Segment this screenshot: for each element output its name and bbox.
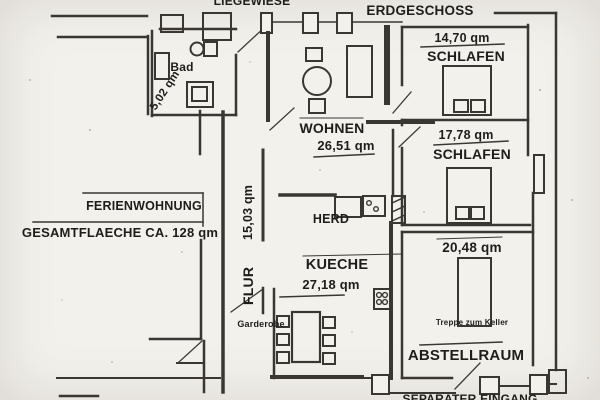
door-swing-icon	[455, 363, 480, 389]
chair-icon	[277, 334, 289, 345]
treppe-zum-keller-label: Treppe zum Keller	[436, 318, 508, 327]
dining-table-icon	[277, 312, 335, 364]
door-swing-icon	[179, 341, 202, 362]
schlafen1-area: 14,70 qm	[434, 31, 489, 45]
flur-area: 15,03 qm	[241, 185, 255, 240]
stairs-icon	[458, 258, 491, 326]
door-swing-icon	[393, 92, 411, 113]
kueche-area: 27,18 qm	[302, 277, 359, 292]
abstellraum-area: 20,48 qm	[442, 240, 501, 255]
area-underline	[437, 237, 502, 239]
area-underline	[280, 295, 344, 297]
toilet-icon	[191, 42, 218, 56]
kueche-room-label: KUECHE	[306, 257, 368, 273]
wohnen-area: 26,51 qm	[317, 138, 374, 153]
chair-icon	[277, 352, 289, 363]
chair-icon	[323, 317, 335, 328]
flur-room-label: FLUR	[240, 267, 256, 305]
bed-icon	[443, 66, 491, 115]
chair-icon	[323, 335, 335, 346]
shower-icon	[187, 82, 213, 107]
label-underline	[303, 254, 402, 256]
bed-icon	[447, 168, 491, 223]
chair-icon	[323, 353, 335, 364]
area-underline	[314, 154, 374, 157]
eingang-label: SEPARATER EINGANG	[403, 392, 538, 400]
herd-label: HERD	[313, 212, 349, 226]
round-table-icon	[303, 67, 331, 95]
schlafen2-area: 17,78 qm	[438, 128, 493, 142]
door-swing-icon	[399, 127, 420, 147]
erdgeschoss-label: ERDGESCHOSS	[366, 3, 473, 18]
flur-walls	[150, 111, 263, 392]
sofa-icon	[347, 46, 372, 97]
door-swing-icon	[270, 108, 294, 130]
sink-unit-icon	[374, 289, 390, 309]
total-area-label: GESAMTFLAECHE CA. 128 qm	[22, 225, 218, 240]
label-underline	[420, 342, 502, 345]
liegewiese-label: LIEGEWIESE	[214, 0, 291, 8]
garderobe-label: Garderobe	[237, 319, 284, 329]
chair-icon	[306, 48, 322, 61]
schlafen2-room-label: SCHLAFEN	[433, 146, 511, 162]
outer-right-wall	[495, 13, 566, 393]
apartment-name-label: FERIENWOHNUNG	[86, 199, 202, 213]
floorplan-page: LIEGEWIESE ERDGESCHOSS 14,70 qm SCHLAFEN…	[0, 0, 600, 400]
abstellraum-room-label: ABSTELLRAUM	[408, 347, 524, 364]
chair-icon	[309, 99, 325, 113]
wohnen-room-label: WOHNEN	[300, 120, 365, 136]
schlafen1-room-label: SCHLAFEN	[427, 48, 505, 64]
wohnen-furniture	[303, 46, 372, 113]
